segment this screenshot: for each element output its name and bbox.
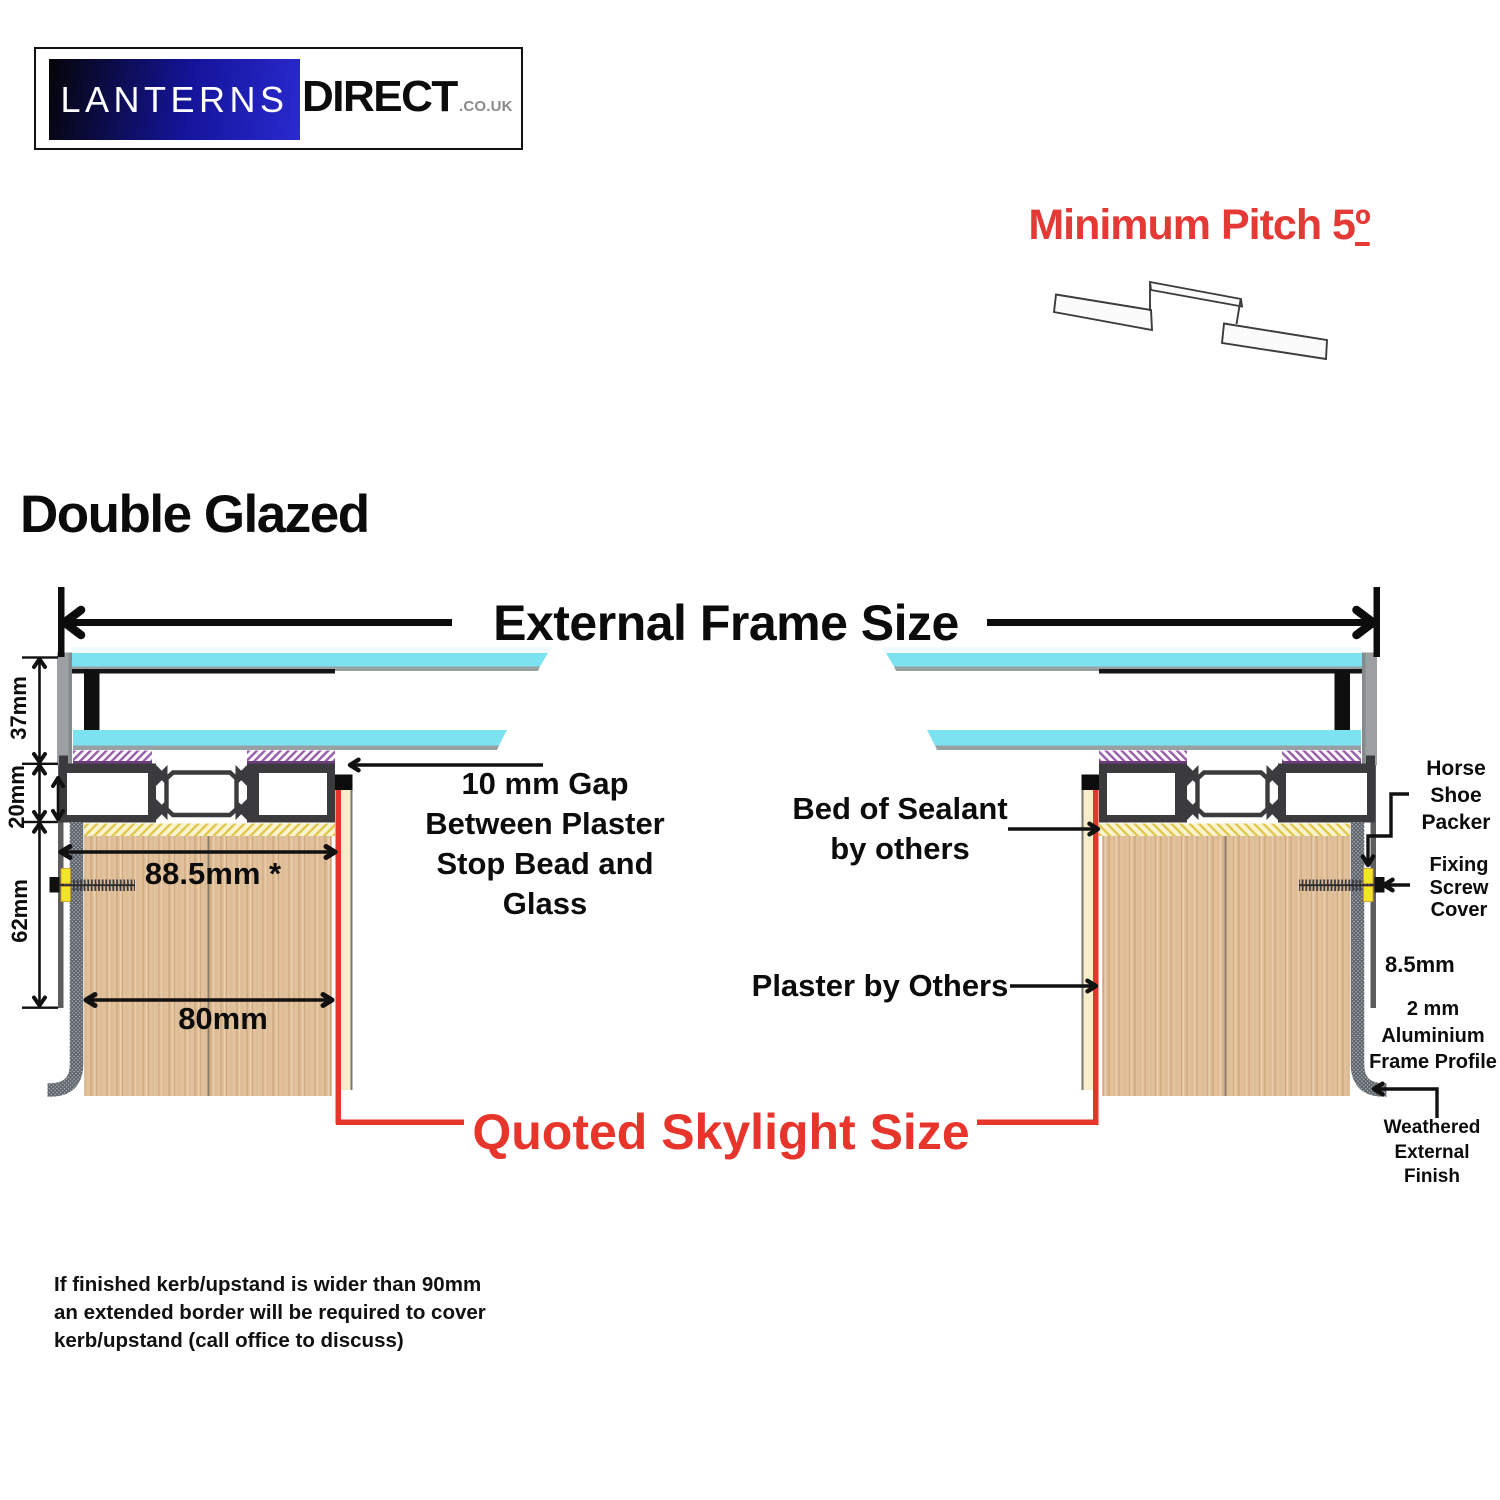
svg-text:20mm: 20mm [4,765,29,829]
svg-text:62mm: 62mm [7,879,32,943]
svg-text:80mm: 80mm [178,1001,268,1036]
svg-text:37mm: 37mm [6,676,31,740]
svg-text:88.5mm *: 88.5mm * [145,856,282,891]
